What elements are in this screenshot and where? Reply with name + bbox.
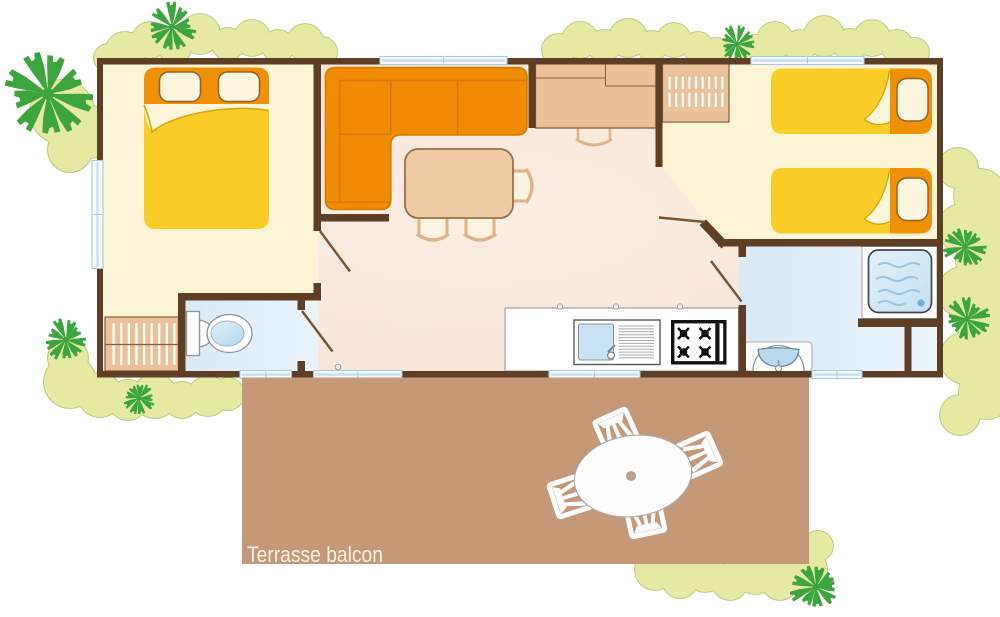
svg-text:Terrasse balcon: Terrasse balcon: [247, 542, 383, 567]
